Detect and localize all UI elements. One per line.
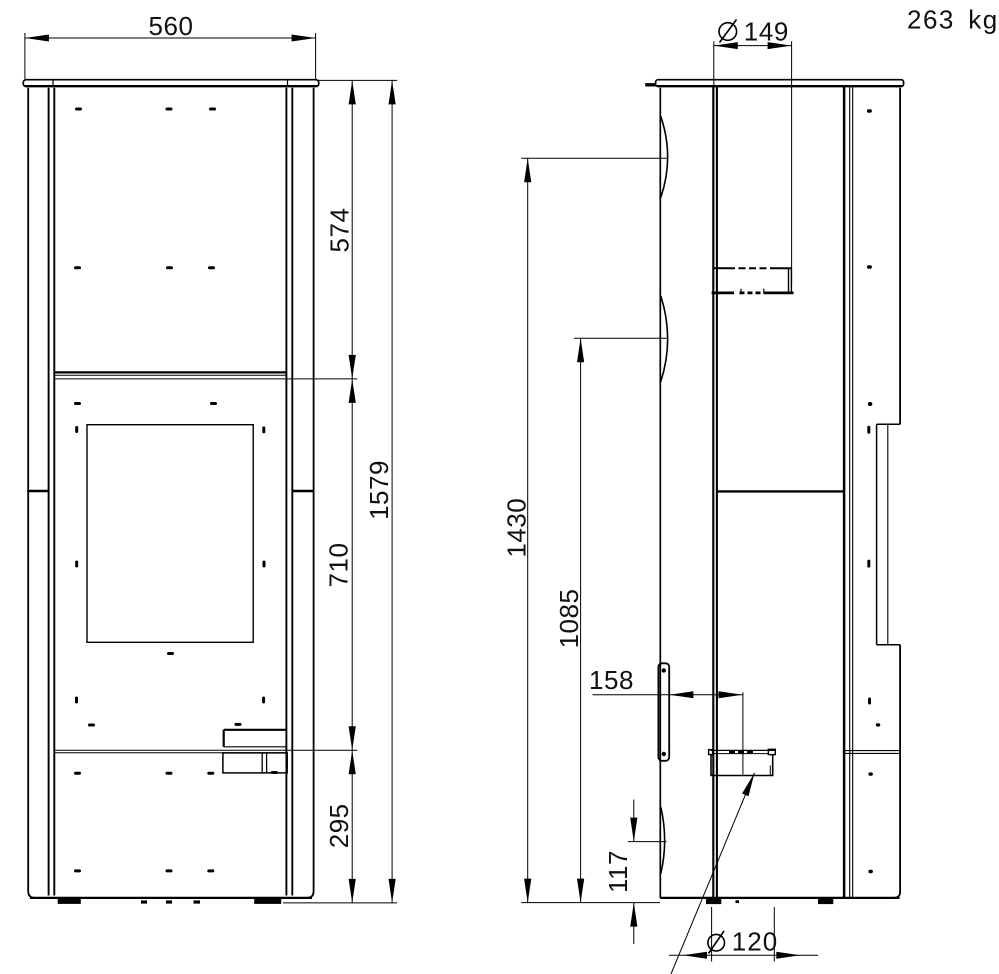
svg-text:1430: 1430 — [502, 498, 532, 558]
svg-text:1579: 1579 — [364, 460, 394, 520]
svg-text:263 kg: 263 kg — [907, 5, 999, 35]
svg-text:560: 560 — [149, 11, 194, 41]
svg-text:574: 574 — [325, 208, 355, 253]
svg-text:710: 710 — [324, 543, 354, 588]
svg-text:117: 117 — [603, 850, 633, 893]
svg-text:1085: 1085 — [554, 589, 584, 649]
svg-text:120: 120 — [732, 927, 778, 957]
svg-text:295: 295 — [324, 803, 354, 848]
svg-text:149: 149 — [744, 17, 789, 47]
svg-text:158: 158 — [589, 665, 634, 695]
